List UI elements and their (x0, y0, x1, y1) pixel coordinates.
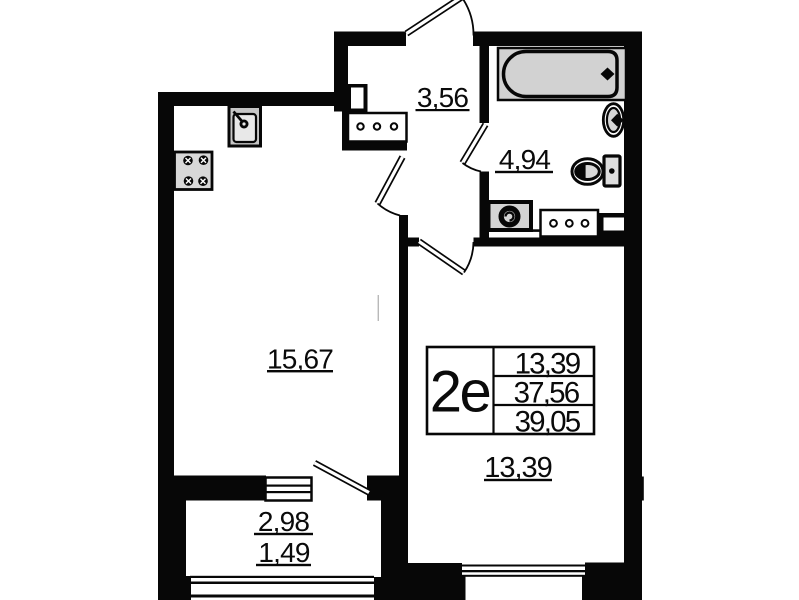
svg-text:15,67: 15,67 (267, 344, 333, 375)
svg-text:3,56: 3,56 (417, 82, 469, 113)
svg-text:4,94: 4,94 (499, 144, 551, 175)
svg-text:1,49: 1,49 (258, 537, 310, 568)
svg-text:39,05: 39,05 (515, 406, 581, 439)
svg-text:2,98: 2,98 (258, 506, 310, 537)
svg-text:2e: 2e (430, 360, 490, 425)
